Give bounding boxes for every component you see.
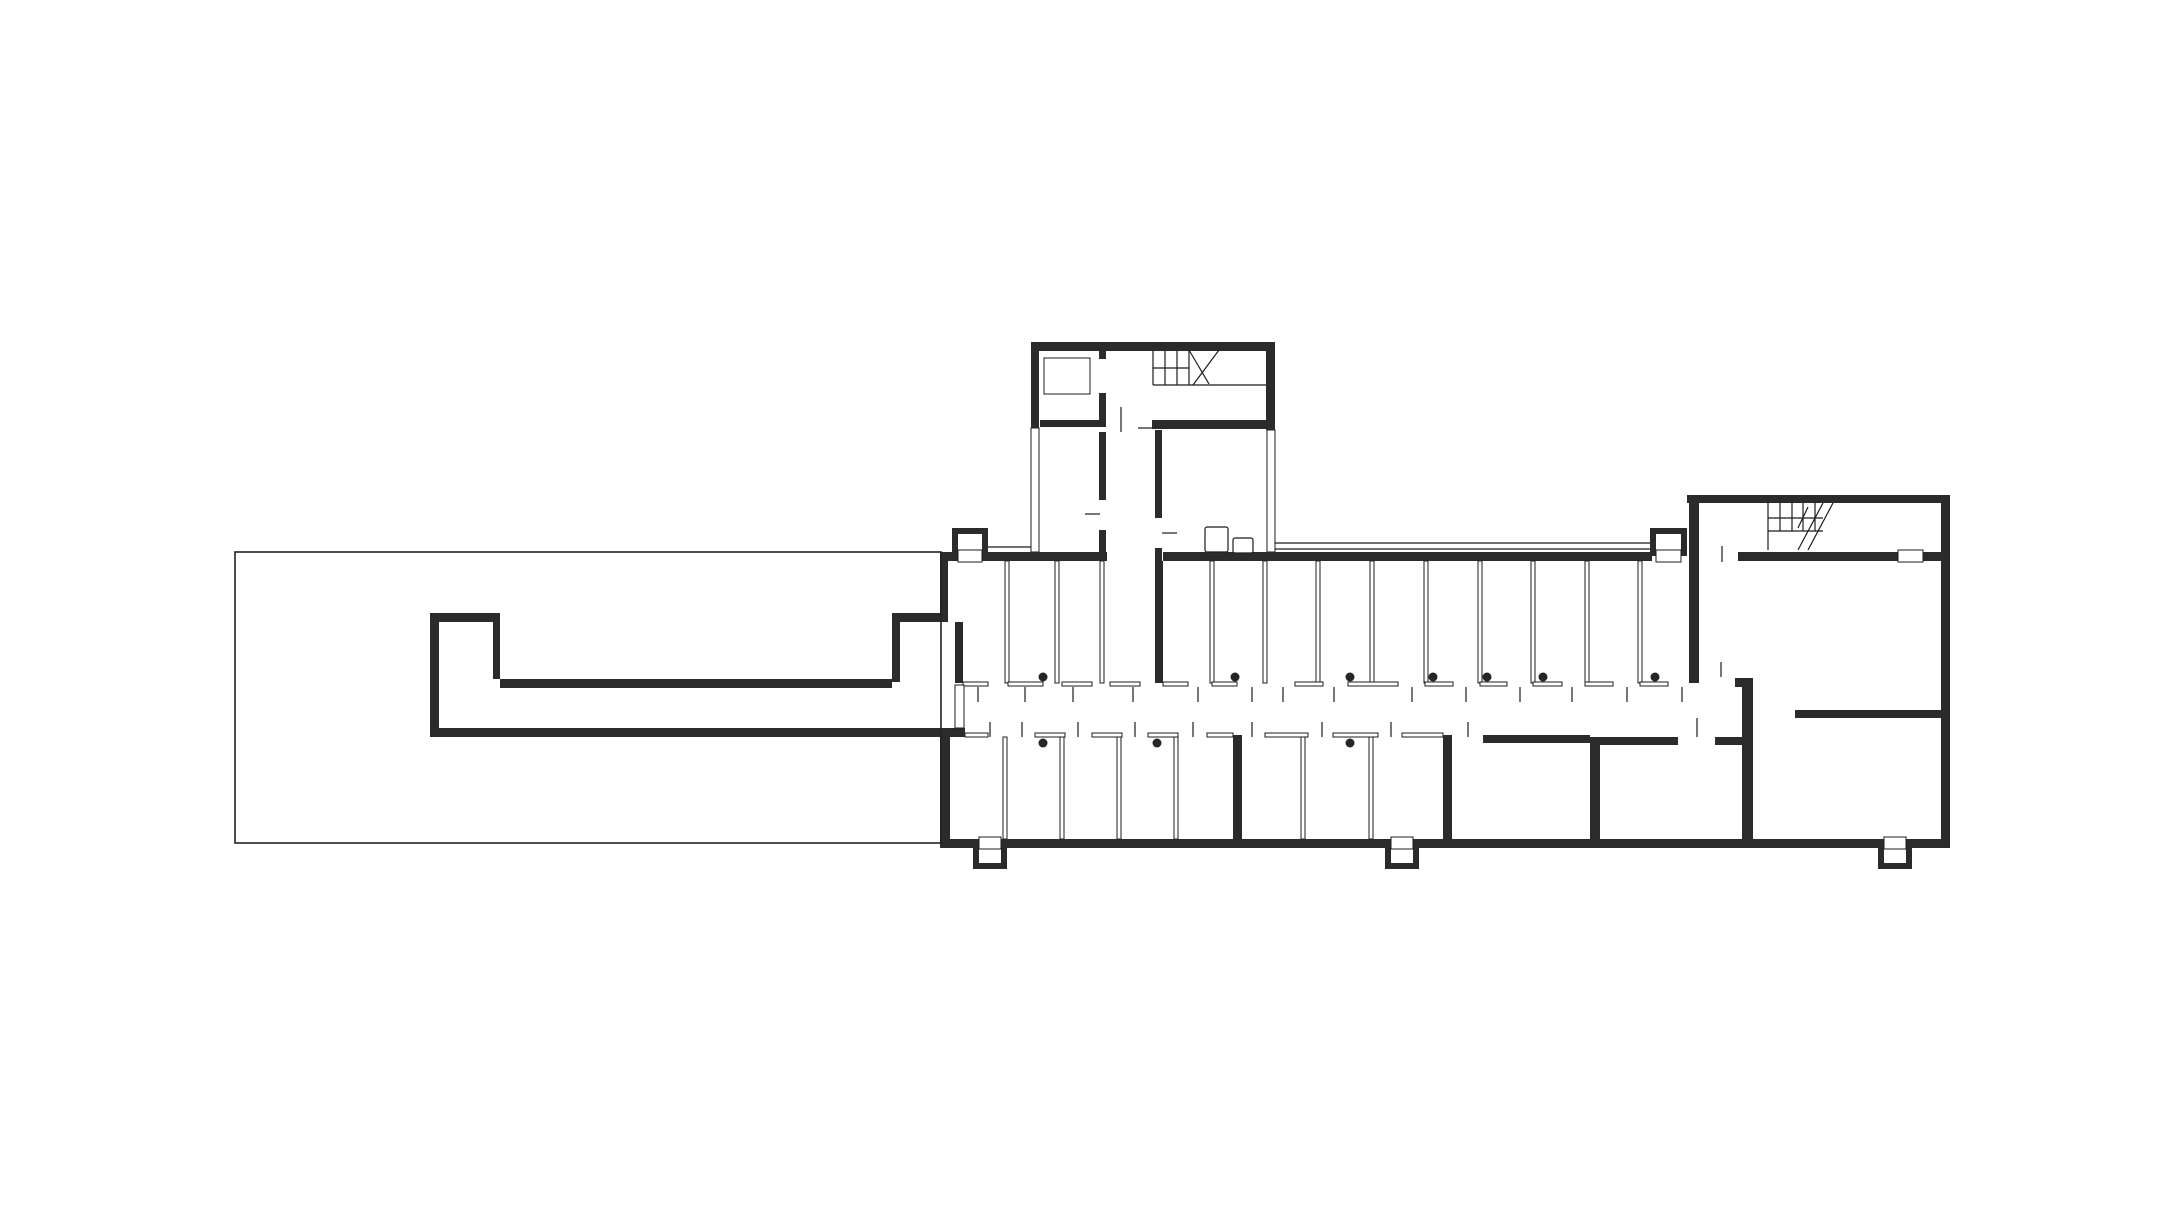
furniture-layer [1205,527,1253,553]
thin-partition [1060,737,1064,839]
walls-layer [430,342,1950,869]
wall-segment [1795,710,1941,718]
thin-partition [1531,561,1535,683]
thin-partition [1008,682,1043,686]
floor-plan [0,0,2182,1220]
wall-segment [1155,430,1162,518]
wall-segment [1152,420,1275,429]
wall-segment [1099,351,1106,359]
detail-line [1798,503,1823,550]
wall-segment [1031,342,1275,351]
door-hinge-dot [1483,673,1492,682]
thin-partition [1035,733,1065,737]
wall-segment [1155,561,1163,683]
wall-segment [493,622,500,679]
wall-segment [1735,678,1753,687]
terrace-outline [235,552,941,843]
wall-segment [1099,530,1106,552]
thin-partition [1585,561,1589,683]
wall-segment [1715,737,1742,745]
thin-partition [1301,737,1305,839]
wall-segment [1040,420,1099,427]
wall-segment [1099,393,1106,427]
thin-partition [1092,733,1122,737]
wall-segment [1742,678,1753,839]
thin-partition [1055,561,1059,683]
wall-opening [958,550,982,562]
wall-segment [1099,432,1106,500]
thin-partition [1148,733,1178,737]
wall-opening [1656,550,1681,562]
thin-partition [1174,737,1178,839]
thin-partition [1480,682,1507,686]
thin-partition [1005,561,1009,683]
thin-partition [1267,430,1275,552]
fixture [1233,538,1253,553]
wall-segment [940,839,1950,848]
door-hinge-dot [1539,673,1548,682]
thin-partition [1100,561,1104,683]
thin-partition [1370,561,1374,683]
wall-opening [979,837,1001,849]
door-hinge-dot [1231,673,1240,682]
thin-partition [1263,561,1267,683]
door-hinge-dot [1039,739,1048,748]
thin-partition [1348,682,1398,686]
thin-partition [1533,682,1562,686]
thin-partition [1425,682,1453,686]
wall-segment [1650,528,1687,534]
wall-segment [1600,737,1678,745]
wall-segment [1155,548,1162,561]
thin-partition [1638,561,1642,683]
thin-partition [1062,682,1092,686]
wall-segment [1443,735,1452,839]
thin-partition [1117,737,1121,839]
thin-partition [1585,682,1613,686]
thin-partition [1212,682,1237,686]
wall-segment [1031,342,1039,428]
thin-partition [1210,561,1214,683]
fixture [1205,527,1228,552]
thin-partition [1369,737,1373,839]
thin-partition [1402,733,1443,737]
wall-opening [955,685,964,728]
wall-segment [892,613,948,622]
wall-segment [955,622,963,683]
wall-segment [430,613,500,622]
door-hinge-dot [1039,673,1048,682]
wall-segment [1738,552,1898,561]
wall-opening [1884,837,1906,849]
thin-partition [1044,358,1090,394]
door-hinge-dot [1346,673,1355,682]
wall-opening [1391,837,1413,849]
wall-segment [1385,863,1419,869]
wall-segment [1233,735,1242,839]
thin-partition [1295,682,1323,686]
thin-partition [1424,561,1428,683]
wall-segment [1266,342,1275,430]
wall-segment [1689,495,1699,683]
wall-segment [430,613,439,737]
wall-segment [1878,863,1912,869]
thin-partition [1163,682,1188,686]
wall-segment [1483,735,1590,743]
thin-partition [1003,737,1007,839]
wall-segment [500,679,892,688]
details-layer [978,350,1833,737]
site-outline-layer [235,552,941,843]
wall-segment [1687,495,1950,503]
wall-opening [1898,550,1923,562]
thin-partition [1316,561,1320,683]
thin-partition [1478,561,1482,683]
wall-segment [1590,737,1600,839]
wall-segment [973,863,1007,869]
thin-partition [1031,428,1039,552]
wall-segment [952,528,988,534]
thin-partition [1207,733,1233,737]
floor-plan-canvas [0,0,2182,1220]
door-hinge-dot [1651,673,1660,682]
wall-segment [430,728,965,737]
thin-partition [965,733,988,737]
thin-partition [963,682,988,686]
thin-partition [1640,682,1668,686]
door-hinge-dot [1153,739,1162,748]
partitions-layer [963,358,1668,839]
wall-segment [892,622,900,682]
thin-partition [1110,682,1140,686]
detail-line [1808,503,1833,550]
door-hinge-dot [1429,673,1438,682]
door-hinge-dot [1346,739,1355,748]
thin-partition [1265,733,1308,737]
thin-partition [1333,733,1378,737]
wall-segment [1941,495,1950,848]
